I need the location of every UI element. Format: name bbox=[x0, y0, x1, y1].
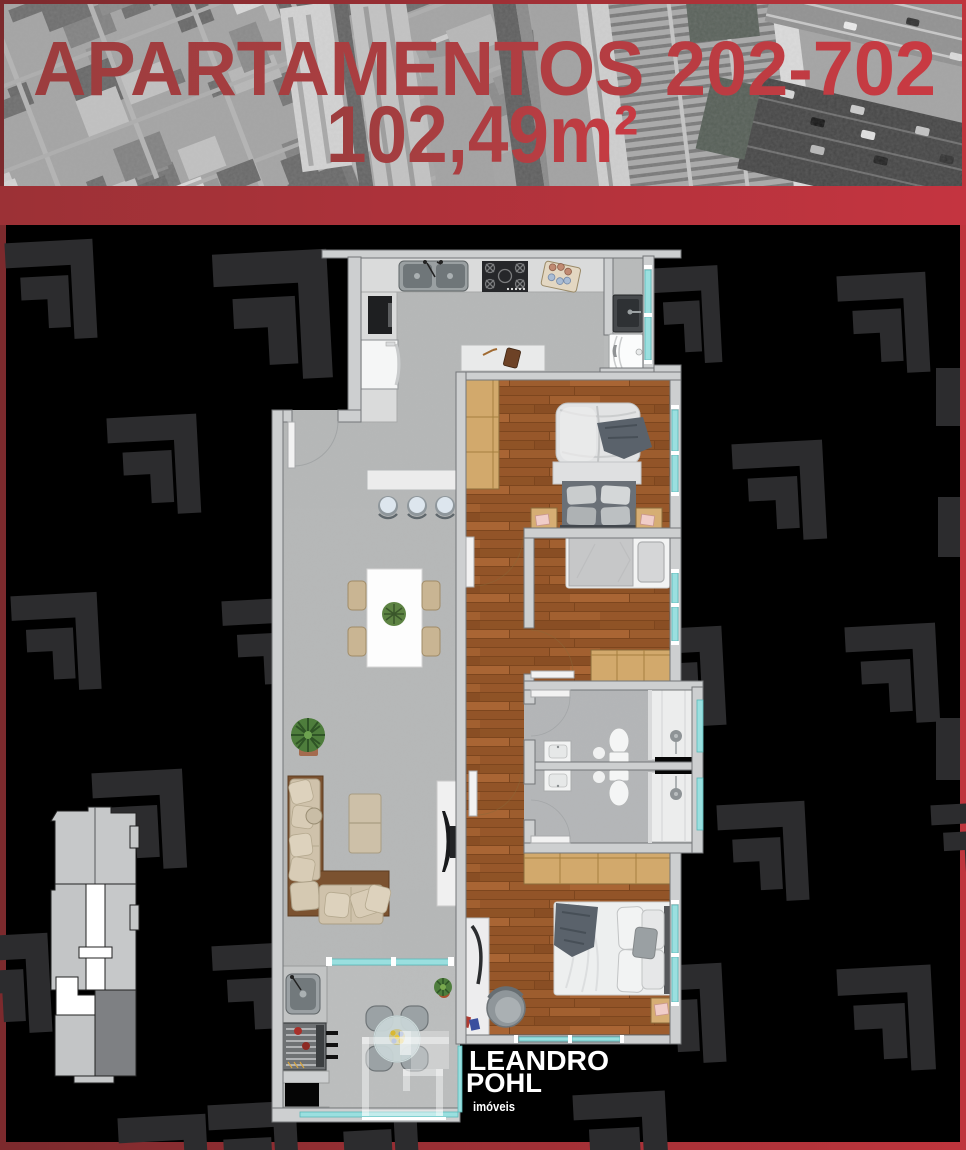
svg-text:102,49m²: 102,49m² bbox=[326, 90, 638, 180]
svg-text:imóveis: imóveis bbox=[473, 1099, 515, 1114]
svg-text:POHL: POHL bbox=[466, 1068, 542, 1098]
